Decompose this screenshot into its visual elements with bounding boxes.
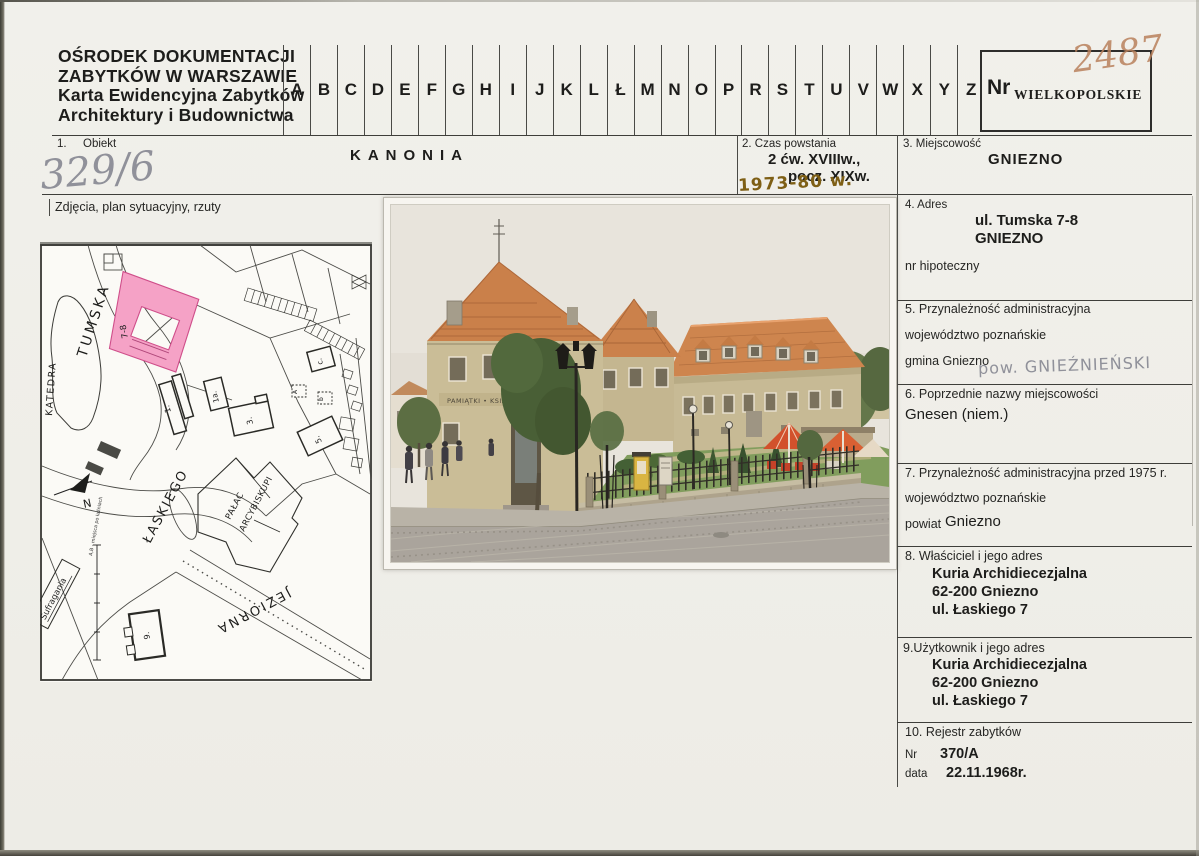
handwritten-inventory-number: 329/6 [38,143,157,199]
field9-line3: ul. Łaskiego 7 [932,692,1028,710]
field9-line1: Kuria Archidiecezjalna [932,656,1087,674]
index-letter-P: P [716,45,743,135]
scan-edge-bottom [0,850,1199,856]
field4-address-line1: ul. Tumska 7-8 [975,212,1078,229]
field7-line2-label: powiat [905,517,941,531]
field10-nr-label: Nr [905,749,917,761]
field1-value-object: KANONIA [350,147,469,164]
field9-label: 9.Użytkownik i jego adres [903,641,1045,655]
attachments-caption: Zdjęcia, plan sytuacyjny, rzuty [55,200,221,214]
field4-note: nr hipoteczny [905,259,979,273]
institution-line-4: Architektury i Budownictwa [58,106,304,126]
scan-edge-left [0,0,5,856]
rule-header-bottom [52,135,1192,136]
scan-edge-top [0,0,1199,2]
field8-line2: 62-200 Gniezno [932,583,1038,601]
handwritten-date-note: 1973-80 w. [738,170,854,196]
map-label-building-b: b [318,397,325,401]
rule-f6-bottom [897,463,1192,464]
field10-label: 10. Rejestr zabytków [905,725,1021,739]
index-letter-L: L [581,45,608,135]
index-letter-I: I [500,45,527,135]
index-letter-J: J [527,45,554,135]
index-letter-S: S [769,45,796,135]
rule-f5-bottom [897,384,1192,385]
index-letter-E: E [392,45,419,135]
field4-address-line2: GNIEZNO [975,230,1043,247]
field7-label: 7. Przynależność administracyjna przed 1… [905,466,1167,480]
index-letter-N: N [662,45,689,135]
rule-f8-bottom [897,637,1192,638]
nr-label: Nr [987,76,1010,100]
field2-value-line1: 2 ćw. XVIIIw., [768,151,860,168]
field9-line2: 62-200 Gniezno [932,674,1038,692]
index-letter-C: C [338,45,365,135]
handwritten-district: pow. GNIEŹNIEŃSKI [978,353,1152,378]
index-letter-W: W [877,45,904,135]
field5-line1: województwo poznańskie [905,328,1046,342]
map-label-building-9: 9. [142,631,152,640]
rule-right-edge [1192,196,1193,526]
institution-line-3: Karta Ewidencyjna Zabytków [58,86,304,106]
rule-f9-bottom [897,722,1192,723]
field6-value: Gnesen (niem.) [905,406,1008,423]
field2-label: 2. Czas powstania [742,138,836,150]
index-letter-G: G [446,45,473,135]
index-letter-Y: Y [931,45,958,135]
index-letter-T: T [796,45,823,135]
photo-print: PAMIĄTKI • KSIĄŻKI [383,197,897,570]
field3-value-town: GNIEZNO [988,151,1063,168]
index-letter-X: X [904,45,931,135]
field10-date-label: data [905,768,927,780]
field3-label: 3. Miejscowość [903,138,981,150]
field10-date-value: 22.11.1968r. [946,764,1027,782]
field5-line2: gmina Gniezno [905,354,989,368]
field4-label: 4. Adres [905,199,947,211]
index-letter-H: H [473,45,500,135]
field1-number: 1. [57,138,67,150]
index-letter-M: M [635,45,662,135]
index-letter-U: U [823,45,850,135]
rule-row1-bottom [42,194,1192,195]
index-letter-R: R [742,45,769,135]
index-letter-V: V [850,45,877,135]
field8-label: 8. Właściciel i jego adres [905,549,1043,563]
index-letter-F: F [419,45,446,135]
index-letter-A: A [284,45,311,135]
field6-label: 6. Poprzednie nazwy miejscowości [905,387,1098,401]
index-letter-Ł: Ł [608,45,635,135]
index-letter-K: K [554,45,581,135]
institution-line-1: OŚRODEK DOKUMENTACJI [58,47,304,67]
attachments-caption-bar [49,199,50,216]
rule-f7-bottom [897,546,1192,547]
field8-line1: Kuria Archidiecezjalna [932,565,1087,583]
field8-line3: ul. Łaskiego 7 [932,601,1028,619]
index-letter-O: O [689,45,716,135]
field7-line2-value: Gniezno [945,513,1001,530]
institution-line-2: ZABYTKÓW W WARSZAWIE [58,67,304,87]
field5-label: 5. Przynależność administracyjna [905,302,1091,316]
photo-canonry-view: PAMIĄTKI • KSIĄŻKI [391,205,889,562]
index-letter-D: D [365,45,392,135]
site-plan-map: 7-8 [40,242,372,682]
field7-line1: województwo poznańskie [905,491,1046,505]
index-letter-B: B [311,45,338,135]
voivodeship-stamp: WIELKOPOLSKIE [1014,87,1142,103]
institution-title: OŚRODEK DOKUMENTACJI ZABYTKÓW W WARSZAWI… [58,47,304,125]
rule-right-column [897,135,898,787]
heritage-record-card-scan: { "document": { "institution": ["OŚRODEK… [0,0,1199,856]
field10-nr-value: 370/A [940,745,979,763]
index-letter-row: ABCDEFGHIJKLŁMNOPRSTUVWXYZ [283,45,984,135]
